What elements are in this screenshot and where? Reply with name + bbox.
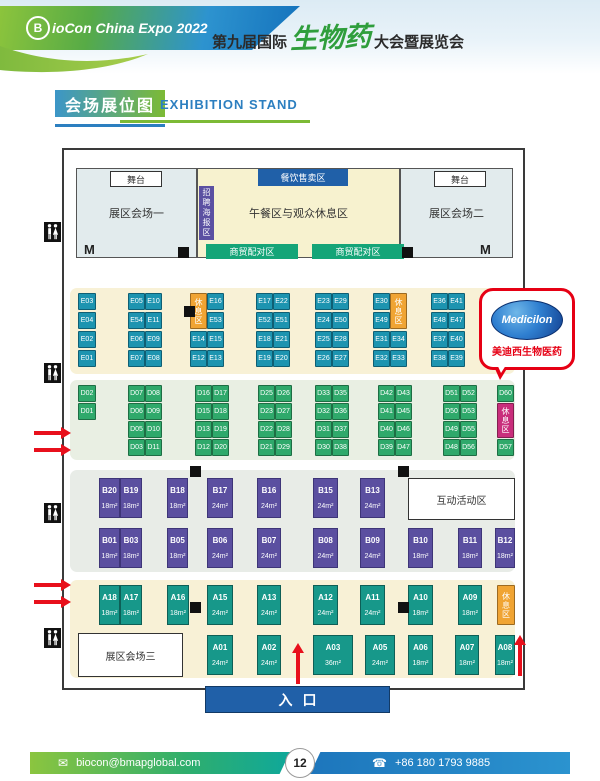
booth-E20[interactable]: E20 bbox=[273, 350, 290, 367]
booth-B09[interactable]: B0924m² bbox=[360, 528, 385, 568]
pillar bbox=[190, 602, 201, 613]
arrow-up-icon bbox=[518, 644, 522, 676]
booth-B18[interactable]: B1818m² bbox=[167, 478, 188, 518]
booth-B11[interactable]: B1118m² bbox=[458, 528, 482, 568]
booth-E30[interactable]: E30 bbox=[373, 293, 390, 310]
booth-B06[interactable]: B0624m² bbox=[207, 528, 233, 568]
booth-B03[interactable]: B0318m² bbox=[120, 528, 142, 568]
restroom-icon bbox=[44, 503, 61, 523]
booth-D50[interactable]: D50 bbox=[443, 403, 460, 420]
medicilon-caption: 美迪西生物医药 bbox=[492, 343, 562, 358]
booth-E14[interactable]: E14 bbox=[190, 331, 207, 348]
booth-D32[interactable]: D32 bbox=[315, 403, 332, 420]
floor-map: 展区会场一午餐区与观众休息区展区会场二舞台舞台餐饮售卖区招聘海报区商贸配对区商贸… bbox=[0, 0, 600, 781]
arrow-right-icon bbox=[34, 431, 62, 435]
booth-E50[interactable]: E50 bbox=[332, 312, 349, 329]
booth-E49[interactable]: E49 bbox=[373, 312, 390, 329]
business-matching-area-2: 商贸配对区 bbox=[312, 244, 404, 259]
booth-A17[interactable]: A1718m² bbox=[120, 585, 142, 625]
booth-E19[interactable]: E19 bbox=[256, 350, 273, 367]
stage-1: 舞台 bbox=[110, 171, 162, 187]
booth-D21[interactable]: D21 bbox=[258, 439, 275, 456]
booth-E01[interactable]: E01 bbox=[78, 350, 96, 367]
email-text: biocon@bmapglobal.com bbox=[76, 757, 200, 769]
booth-A07[interactable]: A0718m² bbox=[455, 635, 479, 675]
booth-E05[interactable]: E05 bbox=[128, 293, 145, 310]
booth-E38[interactable]: E38 bbox=[431, 350, 448, 367]
booth-B20[interactable]: B2018m² bbox=[99, 478, 120, 518]
booth-E08[interactable]: E08 bbox=[145, 350, 162, 367]
callout-tail-inner bbox=[496, 362, 508, 373]
booth-B01[interactable]: B0118m² bbox=[99, 528, 120, 568]
booth-E18[interactable]: E18 bbox=[256, 331, 273, 348]
booth-E48[interactable]: E48 bbox=[431, 312, 448, 329]
booth-D26[interactable]: D26 bbox=[275, 385, 292, 402]
booth-D07[interactable]: D07 bbox=[128, 385, 145, 402]
booth-D42[interactable]: D42 bbox=[378, 385, 395, 402]
booth-E03[interactable]: E03 bbox=[78, 293, 96, 310]
booth-E27[interactable]: E27 bbox=[332, 350, 349, 367]
booth-A10[interactable]: A1018m² bbox=[408, 585, 433, 625]
booth-E41[interactable]: E41 bbox=[448, 293, 465, 310]
booth-D56[interactable]: D56 bbox=[460, 439, 477, 456]
booth-D01[interactable]: D01 bbox=[78, 403, 96, 420]
booth-E40[interactable]: E40 bbox=[448, 331, 465, 348]
door-icon: M bbox=[84, 243, 95, 256]
booth-E39[interactable]: E39 bbox=[448, 350, 465, 367]
booth-A06[interactable]: A0618m² bbox=[408, 635, 433, 675]
arrow-up-icon bbox=[296, 652, 300, 684]
footer-phone-bar[interactable]: ☎ +86 180 1793 9885 bbox=[310, 752, 570, 774]
booth-D12[interactable]: D12 bbox=[195, 439, 212, 456]
booth-D22[interactable]: D22 bbox=[258, 421, 275, 438]
booth-E22[interactable]: E22 bbox=[273, 293, 290, 310]
booth-D46[interactable]: D46 bbox=[395, 421, 412, 438]
brochure-page: B ioCon China Expo 2022 第九届国际 生物药 大会暨展览会… bbox=[0, 0, 600, 781]
poster-area: 招聘海报区 bbox=[199, 186, 214, 240]
business-matching-area-1: 商贸配对区 bbox=[206, 244, 298, 259]
booth-E13[interactable]: E13 bbox=[207, 350, 224, 367]
booth-A02[interactable]: A0224m² bbox=[257, 635, 281, 675]
booth-D49[interactable]: D49 bbox=[443, 421, 460, 438]
booth-D51[interactable]: D51 bbox=[443, 385, 460, 402]
booth-D15[interactable]: D15 bbox=[195, 403, 212, 420]
booth-D35[interactable]: D35 bbox=[332, 385, 349, 402]
phone-text: +86 180 1793 9885 bbox=[395, 757, 490, 769]
booth-E33[interactable]: E33 bbox=[390, 350, 407, 367]
booth-D11[interactable]: D11 bbox=[145, 439, 162, 456]
restroom-icon bbox=[44, 363, 61, 383]
booth-D43[interactable]: D43 bbox=[395, 385, 412, 402]
booth-D18[interactable]: D18 bbox=[212, 403, 229, 420]
booth-D52[interactable]: D52 bbox=[460, 385, 477, 402]
booth-A09[interactable]: A0918m² bbox=[458, 585, 482, 625]
arrow-right-icon bbox=[34, 448, 62, 452]
rest-area-block: 休息区 bbox=[497, 403, 514, 438]
booth-D08[interactable]: D08 bbox=[145, 385, 162, 402]
booth-D47[interactable]: D47 bbox=[395, 439, 412, 456]
booth-E54[interactable]: E54 bbox=[128, 312, 145, 329]
booth-D06[interactable]: D06 bbox=[128, 403, 145, 420]
booth-D16[interactable]: D16 bbox=[195, 385, 212, 402]
booth-E25[interactable]: E25 bbox=[315, 331, 332, 348]
pillar bbox=[398, 602, 409, 613]
booth-A11[interactable]: A1124m² bbox=[360, 585, 385, 625]
booth-D25[interactable]: D25 bbox=[258, 385, 275, 402]
booth-B17[interactable]: B1724m² bbox=[207, 478, 233, 518]
booth-E09[interactable]: E09 bbox=[145, 331, 162, 348]
booth-D13[interactable]: D13 bbox=[195, 421, 212, 438]
food-sales-area: 餐饮售卖区 bbox=[258, 169, 348, 186]
stage-2: 舞台 bbox=[434, 171, 486, 187]
booth-D02[interactable]: D02 bbox=[78, 385, 96, 402]
arrow-right-icon bbox=[34, 600, 62, 604]
booth-D55[interactable]: D55 bbox=[460, 421, 477, 438]
page-number-badge: 12 bbox=[285, 748, 315, 778]
booth-D19[interactable]: D19 bbox=[212, 421, 229, 438]
booth-B15[interactable]: B1524m² bbox=[313, 478, 338, 518]
booth-D17[interactable]: D17 bbox=[212, 385, 229, 402]
booth-A18[interactable]: A1818m² bbox=[99, 585, 120, 625]
booth-D40[interactable]: D40 bbox=[378, 421, 395, 438]
booth-D37[interactable]: D37 bbox=[332, 421, 349, 438]
booth-D05[interactable]: D05 bbox=[128, 421, 145, 438]
booth-D48[interactable]: D48 bbox=[443, 439, 460, 456]
booth-E04[interactable]: E04 bbox=[78, 312, 96, 329]
booth-D31[interactable]: D31 bbox=[315, 421, 332, 438]
booth-E02[interactable]: E02 bbox=[78, 331, 96, 348]
booth-D53[interactable]: D53 bbox=[460, 403, 477, 420]
hall-3: 展区会场三 bbox=[78, 633, 183, 677]
booth-D39[interactable]: D39 bbox=[378, 439, 395, 456]
booth-D20[interactable]: D20 bbox=[212, 439, 229, 456]
arrow-right-icon bbox=[34, 583, 62, 587]
booth-E26[interactable]: E26 bbox=[315, 350, 332, 367]
booth-E36[interactable]: E36 bbox=[431, 293, 448, 310]
booth-D60[interactable]: D60 bbox=[497, 385, 514, 402]
booth-E28[interactable]: E28 bbox=[332, 331, 349, 348]
booth-A15[interactable]: A1524m² bbox=[207, 585, 233, 625]
booth-E51[interactable]: E51 bbox=[273, 312, 290, 329]
booth-B08[interactable]: B0824m² bbox=[313, 528, 338, 568]
booth-E17[interactable]: E17 bbox=[256, 293, 273, 310]
booth-D10[interactable]: D10 bbox=[145, 421, 162, 438]
booth-E10[interactable]: E10 bbox=[145, 293, 162, 310]
booth-B12[interactable]: B1218m² bbox=[495, 528, 515, 568]
restroom-icon bbox=[44, 222, 61, 242]
booth-D03[interactable]: D03 bbox=[128, 439, 145, 456]
booth-E11[interactable]: E11 bbox=[145, 312, 162, 329]
booth-D38[interactable]: D38 bbox=[332, 439, 349, 456]
booth-B16[interactable]: B1624m² bbox=[257, 478, 281, 518]
booth-D09[interactable]: D09 bbox=[145, 403, 162, 420]
booth-E12[interactable]: E12 bbox=[190, 350, 207, 367]
booth-D45[interactable]: D45 bbox=[395, 403, 412, 420]
booth-E47[interactable]: E47 bbox=[448, 312, 465, 329]
booth-D28[interactable]: D28 bbox=[275, 421, 292, 438]
booth-B05[interactable]: B0518m² bbox=[167, 528, 188, 568]
medicilon-logo: Medicilon bbox=[491, 300, 563, 340]
booth-A08[interactable]: A0818m² bbox=[495, 635, 515, 675]
booth-E34[interactable]: E34 bbox=[390, 331, 407, 348]
booth-A03[interactable]: A0336m² bbox=[313, 635, 353, 675]
booth-E32[interactable]: E32 bbox=[373, 350, 390, 367]
booth-A16[interactable]: A1618m² bbox=[167, 585, 189, 625]
pillar bbox=[398, 466, 409, 477]
booth-D29[interactable]: D29 bbox=[275, 439, 292, 456]
booth-E53[interactable]: E53 bbox=[207, 312, 224, 329]
booth-E31[interactable]: E31 bbox=[373, 331, 390, 348]
pillar bbox=[178, 247, 189, 258]
booth-E24[interactable]: E24 bbox=[315, 312, 332, 329]
booth-A13[interactable]: A1324m² bbox=[257, 585, 281, 625]
booth-E07[interactable]: E07 bbox=[128, 350, 145, 367]
booth-D41[interactable]: D41 bbox=[378, 403, 395, 420]
booth-D27[interactable]: D27 bbox=[275, 403, 292, 420]
restroom-icon bbox=[44, 628, 61, 648]
booth-B07[interactable]: B0724m² bbox=[257, 528, 281, 568]
email-icon: ✉ bbox=[58, 756, 68, 770]
booth-B10[interactable]: B1018m² bbox=[408, 528, 433, 568]
booth-D36[interactable]: D36 bbox=[332, 403, 349, 420]
booth-E52[interactable]: E52 bbox=[256, 312, 273, 329]
entrance-label: 入口 bbox=[205, 686, 390, 713]
pillar bbox=[184, 306, 195, 317]
booth-E29[interactable]: E29 bbox=[332, 293, 349, 310]
phone-icon: ☎ bbox=[372, 756, 387, 770]
booth-D23[interactable]: D23 bbox=[258, 403, 275, 420]
rest-area-block: 休息区 bbox=[497, 585, 515, 625]
booth-D33[interactable]: D33 bbox=[315, 385, 332, 402]
booth-A01[interactable]: A0124m² bbox=[207, 635, 233, 675]
door-icon: M bbox=[480, 243, 491, 256]
medicilon-callout: Medicilon 美迪西生物医药 bbox=[479, 288, 575, 370]
booth-E06[interactable]: E06 bbox=[128, 331, 145, 348]
footer-email-bar[interactable]: ✉ biocon@bmapglobal.com bbox=[30, 752, 290, 774]
booth-D30[interactable]: D30 bbox=[315, 439, 332, 456]
pillar bbox=[190, 466, 201, 477]
booth-E16[interactable]: E16 bbox=[207, 293, 224, 310]
booth-E23[interactable]: E23 bbox=[315, 293, 332, 310]
booth-E21[interactable]: E21 bbox=[273, 331, 290, 348]
rest-area-block: 休息区 bbox=[390, 293, 407, 329]
booth-B19[interactable]: B1918m² bbox=[120, 478, 142, 518]
booth-B13[interactable]: B1324m² bbox=[360, 478, 385, 518]
pillar bbox=[402, 247, 413, 258]
booth-A05[interactable]: A0524m² bbox=[365, 635, 395, 675]
booth-A12[interactable]: A1224m² bbox=[313, 585, 338, 625]
booth-E15[interactable]: E15 bbox=[207, 331, 224, 348]
booth-D57[interactable]: D57 bbox=[497, 439, 514, 456]
interactive-activity-area: 互动活动区 bbox=[408, 478, 515, 520]
booth-E37[interactable]: E37 bbox=[431, 331, 448, 348]
